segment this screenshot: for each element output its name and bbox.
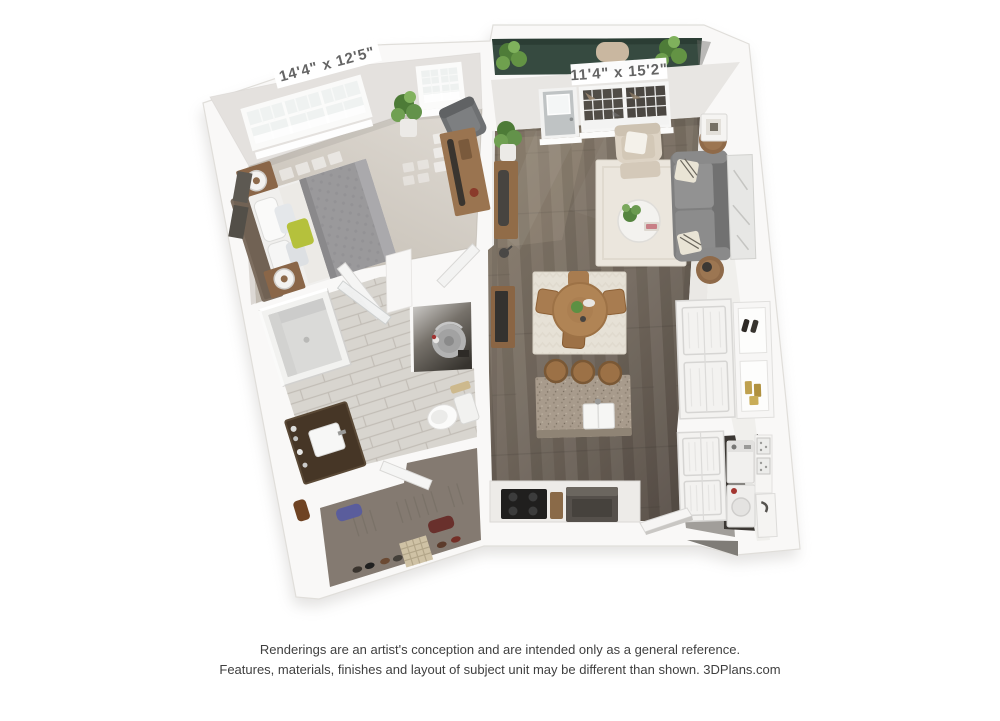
svg-text:Features, materials, finishes: Features, materials, finishes and layout… [219, 662, 780, 677]
svg-text:Renderings are an artist's con: Renderings are an artist's conception an… [260, 642, 740, 657]
